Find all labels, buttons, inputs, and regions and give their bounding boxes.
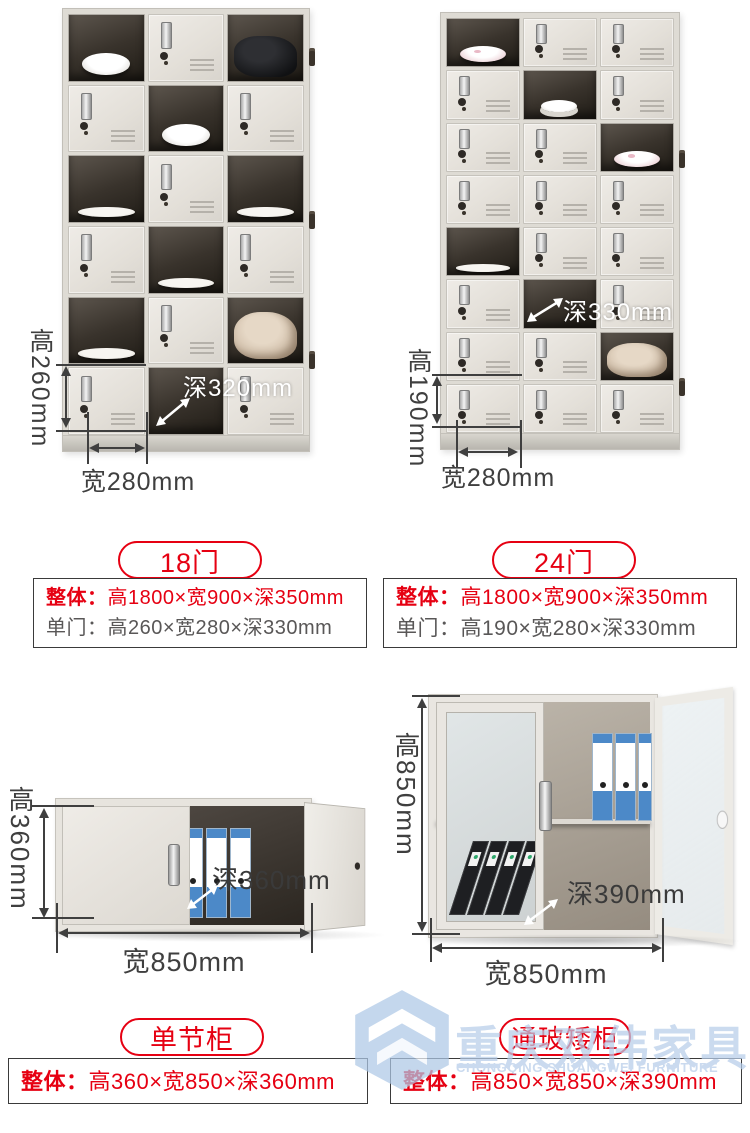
locker18-depth-label: 深320mm [183, 368, 293, 403]
keyhole-icon [458, 307, 466, 315]
bowl-item [162, 124, 210, 146]
depth-dimension-arrow [524, 296, 566, 324]
locker24-depth-label: 深330mm [563, 292, 673, 327]
locker-door [600, 18, 674, 67]
door-handle-icon [539, 781, 552, 831]
single-cabinet-width-label: 宽850mm [114, 940, 254, 979]
locker-door [446, 123, 520, 172]
door-handle-icon [536, 129, 547, 149]
tick-line [32, 805, 94, 807]
door-handle-icon [161, 22, 172, 49]
pill-locker24: 24门 [492, 541, 636, 579]
vent-icon [190, 342, 214, 354]
locker-door [600, 227, 674, 276]
locker-door [68, 367, 145, 435]
glass-cabinet-depth-label: 深390mm [567, 874, 686, 911]
door-handle-icon [613, 24, 624, 44]
cup-item [541, 100, 577, 112]
door-handle-icon [613, 76, 624, 96]
keyhole-icon [240, 122, 248, 130]
open-compartment [68, 297, 145, 365]
keyhole-icon [535, 150, 543, 158]
plate-item [78, 207, 135, 218]
keyhole-icon [458, 359, 466, 367]
locker-door [68, 85, 145, 153]
glass-pane [446, 712, 536, 922]
locker24-grid [446, 18, 674, 433]
vent-icon [563, 204, 587, 216]
keyhole-icon [535, 45, 543, 53]
blue-binder [615, 733, 636, 821]
hanging-key-icon [679, 153, 685, 168]
open-compartment [68, 155, 145, 223]
keyhole-icon [160, 52, 168, 60]
width-dimension-arrow [58, 927, 310, 939]
spec-overall: 整体：高1800×宽900×深350mm [46, 583, 366, 613]
spec-value: 高360×宽850×深360mm [89, 1069, 335, 1094]
spec-label: 单门： [396, 617, 461, 640]
vent-icon [486, 413, 510, 425]
plate-item [237, 207, 294, 218]
single-cabinet-depth-label: 深360mm [212, 860, 331, 897]
vent-icon [563, 257, 587, 269]
spec-label: 整体： [396, 586, 461, 609]
locker-door [148, 14, 225, 82]
keyhole-icon [240, 264, 248, 272]
keyhole-icon [535, 254, 543, 262]
pill-glass-cabinet: 通玻矮柜 [499, 1018, 631, 1056]
door-handle-icon [240, 93, 251, 120]
open-compartment [68, 14, 145, 82]
door-knob-icon [717, 811, 728, 830]
locker-door [523, 227, 597, 276]
keyhole-icon [612, 45, 620, 53]
keyhole-icon [240, 405, 248, 413]
plate-item [78, 348, 135, 359]
bowl-item [82, 53, 130, 75]
depth-dimension-arrow [520, 898, 560, 926]
locker-door [523, 18, 597, 67]
tick-line [87, 412, 89, 464]
spec-value: 高850×宽850×深390mm [471, 1069, 717, 1094]
spec-label: 整体： [21, 1069, 89, 1094]
keyhole-icon [612, 411, 620, 419]
door-handle-icon [459, 390, 470, 410]
door-handle-icon [536, 181, 547, 201]
width-dimension-arrow [458, 446, 518, 458]
black-bag-item [234, 36, 297, 77]
door-handle-icon [536, 24, 547, 44]
keyhole-icon [612, 202, 620, 210]
locker24-specbox: 整体：高1800×宽900×深350mm 单门：高190×宽280×深330mm [383, 578, 737, 648]
depth-dimension-arrow [184, 884, 220, 910]
locker-door [600, 384, 674, 433]
open-compartment [600, 332, 674, 381]
vent-icon [486, 361, 510, 373]
locker-door [148, 297, 225, 365]
floral-bowl-item [614, 151, 660, 167]
tick-line [430, 918, 432, 962]
door-handle-icon [536, 233, 547, 253]
open-compartment [446, 18, 520, 67]
vent-icon [270, 413, 294, 425]
door-handle-icon [81, 93, 92, 120]
tick-line [662, 918, 664, 962]
door-handle-icon [459, 76, 470, 96]
cabinet-left-door [62, 806, 190, 925]
vent-icon [640, 204, 664, 216]
keyhole-icon [535, 202, 543, 210]
tick-line [412, 695, 460, 697]
door-handle-icon [536, 390, 547, 410]
vent-icon [563, 48, 587, 60]
keyhole-icon [458, 150, 466, 158]
keyhole-icon [458, 98, 466, 106]
spec-single-door: 单门：高260×宽280×深330mm [46, 613, 366, 643]
open-compartment [523, 70, 597, 119]
glass-cabinet-specbox: 整体：高850×宽850×深390mm [390, 1058, 742, 1104]
tick-line [432, 374, 522, 376]
vent-icon [640, 413, 664, 425]
vent-icon [486, 152, 510, 164]
spec-overall: 整体：高360×宽850×深360mm [21, 1065, 367, 1098]
height-dimension-arrow [38, 808, 50, 918]
spec-value: 高190×宽280×深330mm [461, 617, 697, 640]
keyhole-icon [80, 122, 88, 130]
keyhole-icon [160, 193, 168, 201]
keyhole-icon [458, 411, 466, 419]
door-handle-icon [613, 390, 624, 410]
locker-door [600, 175, 674, 224]
open-compartment [148, 85, 225, 153]
door-handle-icon [459, 338, 470, 358]
door-handle-icon [459, 181, 470, 201]
vent-icon [640, 48, 664, 60]
spec-label: 单门： [46, 617, 108, 639]
keyhole-icon [612, 254, 620, 262]
locker18-height-label: 高260mm [22, 328, 58, 448]
vent-icon [486, 204, 510, 216]
door-handle-icon [459, 285, 470, 305]
door-handle-icon [536, 338, 547, 358]
open-compartment [227, 155, 304, 223]
spec-value: 高1800×宽900×深350mm [108, 587, 344, 609]
hanging-key-icon [309, 51, 315, 66]
spec-label: 整体： [403, 1069, 471, 1094]
hanging-key-icon [309, 214, 315, 229]
tick-line [56, 430, 146, 432]
locker-door [148, 155, 225, 223]
locker-door [68, 226, 145, 294]
vent-icon [111, 130, 135, 142]
spec-overall: 整体：高1800×宽900×深350mm [396, 582, 736, 614]
height-dimension-arrow [431, 376, 443, 424]
locker24-width-label: 宽280mm [428, 458, 568, 494]
depth-dimension-arrow [152, 396, 192, 428]
locker-door [446, 175, 520, 224]
locker-door [600, 70, 674, 119]
tick-line [412, 933, 460, 935]
open-compartment [600, 123, 674, 172]
door-handle-icon [81, 376, 92, 403]
door-handle-icon [459, 129, 470, 149]
floral-bowl-item [460, 46, 506, 62]
glass-door-closed [436, 702, 544, 930]
vent-icon [190, 59, 214, 71]
locker-door [446, 279, 520, 328]
locker-door [523, 332, 597, 381]
glass-cabinet-width-label: 宽850mm [476, 952, 616, 991]
tick-line [432, 426, 522, 428]
door-handle-icon [240, 234, 251, 261]
locker18-width-label: 宽280mm [68, 462, 208, 498]
locker18-specbox: 整体：高1800×宽900×深350mm 单门：高260×宽280×深330mm [33, 578, 367, 648]
vent-icon [563, 361, 587, 373]
single-cabinet-specbox: 整体：高360×宽850×深360mm [8, 1058, 368, 1104]
spec-value: 高260×宽280×深330mm [108, 617, 333, 639]
blue-binder [638, 733, 652, 821]
door-handle-icon [161, 164, 172, 191]
spec-value: 高1800×宽900×深350mm [461, 586, 709, 609]
pill-single-cabinet: 单节柜 [120, 1018, 264, 1056]
height-dimension-arrow [60, 366, 72, 428]
vent-icon [486, 309, 510, 321]
keyhole-icon [535, 359, 543, 367]
locker-door [227, 226, 304, 294]
lock-knob-icon [355, 862, 360, 869]
vent-icon [486, 100, 510, 112]
door-handle-icon [81, 234, 92, 261]
height-dimension-arrow [416, 698, 428, 932]
vent-icon [111, 413, 135, 425]
plate-item [158, 278, 215, 289]
vent-icon [563, 413, 587, 425]
spec-single-door: 单门：高190×宽280×深330mm [396, 613, 736, 645]
hanging-key-icon [309, 354, 315, 369]
locker-door [446, 70, 520, 119]
blue-binder [592, 733, 613, 821]
door-handle-icon [613, 181, 624, 201]
locker-door [227, 85, 304, 153]
beige-bag-item [234, 312, 297, 359]
product-spec-sheet: 高260mm 宽280mm 深320mm 高190mm 宽280mm 深330m… [0, 0, 750, 1133]
vent-icon [270, 130, 294, 142]
locker-door [523, 384, 597, 433]
open-compartment [446, 227, 520, 276]
keyhole-icon [160, 334, 168, 342]
spec-overall: 整体：高850×宽850×深390mm [403, 1065, 741, 1098]
hanging-key-icon [679, 381, 685, 396]
vent-icon [640, 100, 664, 112]
door-handle-icon [613, 233, 624, 253]
beige-bag-item [607, 343, 667, 377]
vent-icon [270, 271, 294, 283]
pill-locker18: 18门 [118, 541, 262, 579]
spec-label: 整体： [46, 587, 108, 609]
plate-item [456, 264, 511, 272]
open-compartment [227, 297, 304, 365]
locker-door [523, 175, 597, 224]
width-dimension-arrow [89, 442, 145, 454]
keyhole-icon [458, 202, 466, 210]
keyhole-icon [535, 411, 543, 419]
locker-door [523, 123, 597, 172]
vent-icon [111, 271, 135, 283]
keyhole-icon [612, 98, 620, 106]
tick-line [311, 903, 313, 953]
door-handle-icon [161, 305, 172, 332]
vent-icon [190, 201, 214, 213]
open-compartment [148, 226, 225, 294]
open-compartment [227, 14, 304, 82]
door-handle-icon [168, 844, 180, 886]
keyhole-icon [80, 264, 88, 272]
vent-icon [640, 257, 664, 269]
vent-icon [563, 152, 587, 164]
tick-line [146, 412, 148, 464]
locker24-photo [440, 12, 680, 450]
